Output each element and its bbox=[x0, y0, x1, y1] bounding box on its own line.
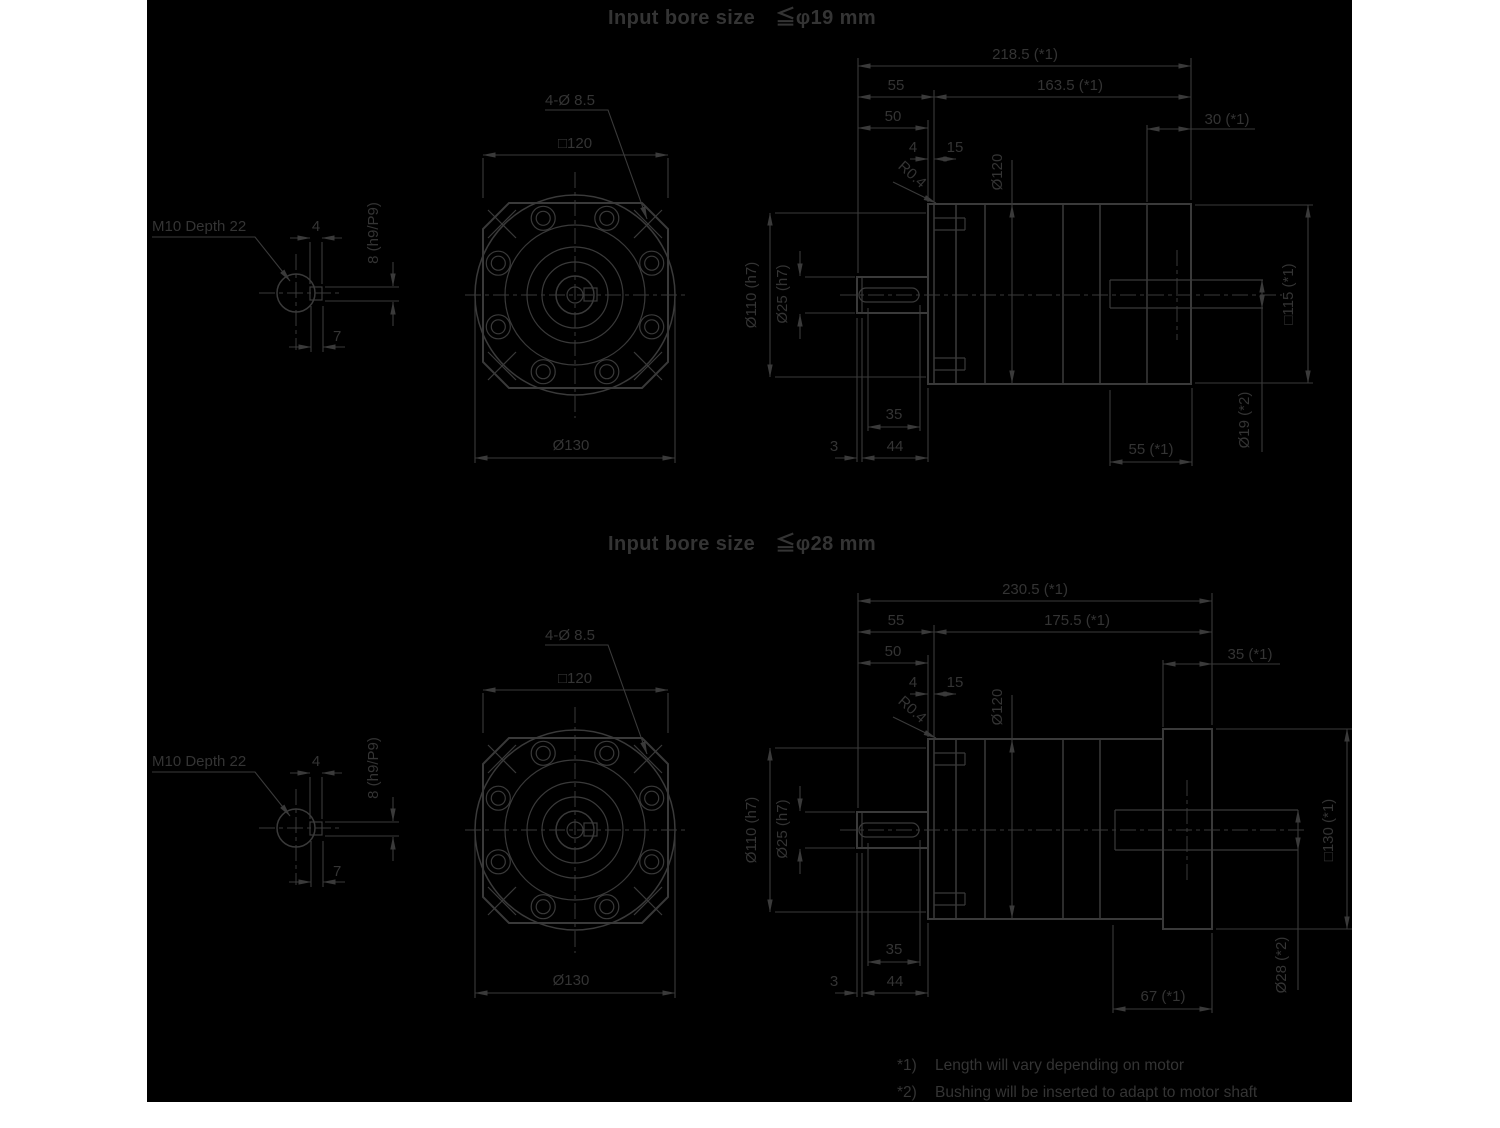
dim-step: 4 bbox=[909, 139, 917, 156]
dim-step: 4 bbox=[909, 674, 917, 691]
drawing-phi28: M10 Depth 22 4 8 (h9/P9) 7 bbox=[152, 581, 1352, 1013]
footnote-2-text: Bushing will be inserted to adapt to mot… bbox=[935, 1084, 1258, 1101]
dim-motor-flange-depth: 30 (*1) bbox=[1204, 111, 1249, 128]
side-view: 218.5 (*1) 55 163.5 (*1) 50 30 (*1) 4 15… bbox=[743, 46, 1313, 466]
dim-key-length: 35 bbox=[886, 406, 903, 423]
dim-pilot-dia: Ø110 (h7) bbox=[743, 262, 760, 328]
dim-key-height: 8 (h9/P9) bbox=[365, 202, 382, 264]
dim-key-depth: 7 bbox=[333, 328, 341, 345]
dim-pilot-dia: Ø110 (h7) bbox=[743, 797, 760, 863]
dim-key-depth: 7 bbox=[333, 863, 341, 880]
dim-body-length: 175.5 (*1) bbox=[1044, 612, 1110, 629]
dim-tip: 3 bbox=[830, 438, 838, 455]
dim-flange-square: □120 bbox=[558, 135, 592, 152]
footnotes: *1) Length will vary depending on motor … bbox=[897, 1057, 1258, 1101]
dim-body-dia: Ø120 bbox=[989, 154, 1006, 191]
thread-label: M10 Depth 22 bbox=[152, 218, 246, 235]
dim-input-bore: Ø19 (*2) bbox=[1236, 392, 1253, 449]
keyway-detail-view: M10 Depth 22 4 8 (h9/P9) 7 bbox=[152, 737, 399, 887]
dim-shaft-section: 50 bbox=[885, 643, 902, 660]
dim-shaft-dia: Ø25 (h7) bbox=[774, 264, 791, 323]
dim-total-length: 218.5 (*1) bbox=[992, 46, 1058, 63]
dim-bolt-holes: 4-Ø 8.5 bbox=[545, 627, 595, 644]
dim-total-length: 230.5 (*1) bbox=[1002, 581, 1068, 598]
drawing-phi19: M10 Depth 22 4 8 (h9/P9) 7 bbox=[152, 46, 1313, 466]
dim-shaft-section: 50 bbox=[885, 108, 902, 125]
keyway-detail-view: M10 Depth 22 4 8 (h9/P9) 7 bbox=[152, 202, 399, 352]
dim-tip: 3 bbox=[830, 973, 838, 990]
dim-flange-square: □120 bbox=[558, 670, 592, 687]
thread-label: M10 Depth 22 bbox=[152, 753, 246, 770]
dim-clamp-length: 67 (*1) bbox=[1140, 988, 1185, 1005]
footnote-1-text: Length will vary depending on motor bbox=[935, 1057, 1184, 1074]
dim-key-width: 4 bbox=[312, 218, 320, 235]
dim-outer-dia: Ø130 bbox=[553, 437, 590, 454]
dim-motor-square: □130 (*1) bbox=[1320, 799, 1337, 861]
dim-plate-thickness: 15 bbox=[947, 139, 964, 156]
dim-shaft-length: 44 bbox=[887, 973, 904, 990]
dim-plate-thickness: 15 bbox=[947, 674, 964, 691]
dim-output-length: 55 bbox=[888, 77, 905, 94]
dim-motor-square: □115 (*1) bbox=[1280, 263, 1297, 324]
dim-output-length: 55 bbox=[888, 612, 905, 629]
dim-fillet: R0.4 bbox=[895, 158, 930, 192]
dim-body-length: 163.5 (*1) bbox=[1037, 77, 1103, 94]
dim-body-dia: Ø120 bbox=[989, 689, 1006, 726]
front-view: 4-Ø 8.5 □120 Ø130 bbox=[465, 627, 685, 998]
dim-bolt-holes: 4-Ø 8.5 bbox=[545, 92, 595, 109]
dim-key-length: 35 bbox=[886, 941, 903, 958]
dim-key-width: 4 bbox=[312, 753, 320, 770]
dim-shaft-dia: Ø25 (h7) bbox=[774, 799, 791, 858]
dim-input-bore: Ø28 (*2) bbox=[1273, 937, 1290, 994]
front-view: 4-Ø 8.5 □120 Ø130 bbox=[465, 92, 685, 463]
page-title-phi19: Input bore size ≦φ19 mm bbox=[608, 5, 876, 29]
dim-shaft-length: 44 bbox=[887, 438, 904, 455]
drawing-canvas: Input bore size ≦φ19 mm Input bore size … bbox=[147, 0, 1352, 1102]
dim-outer-dia: Ø130 bbox=[553, 972, 590, 989]
dim-clamp-length: 55 (*1) bbox=[1128, 441, 1173, 458]
flange-bolt-section bbox=[934, 218, 965, 370]
footnote-2-marker: *2) bbox=[897, 1084, 917, 1101]
side-view: 230.5 (*1) 55 175.5 (*1) 50 35 (*1) 4 15… bbox=[743, 581, 1352, 1013]
technical-drawing: Input bore size ≦φ19 mm Input bore size … bbox=[147, 0, 1352, 1102]
footnote-1-marker: *1) bbox=[897, 1057, 917, 1074]
page-title-phi28: Input bore size ≦φ28 mm bbox=[608, 531, 876, 555]
flange-bolt-section bbox=[934, 753, 965, 905]
dim-fillet: R0.4 bbox=[895, 693, 930, 727]
dim-motor-flange-depth: 35 (*1) bbox=[1227, 646, 1272, 663]
dim-key-height: 8 (h9/P9) bbox=[365, 737, 382, 799]
